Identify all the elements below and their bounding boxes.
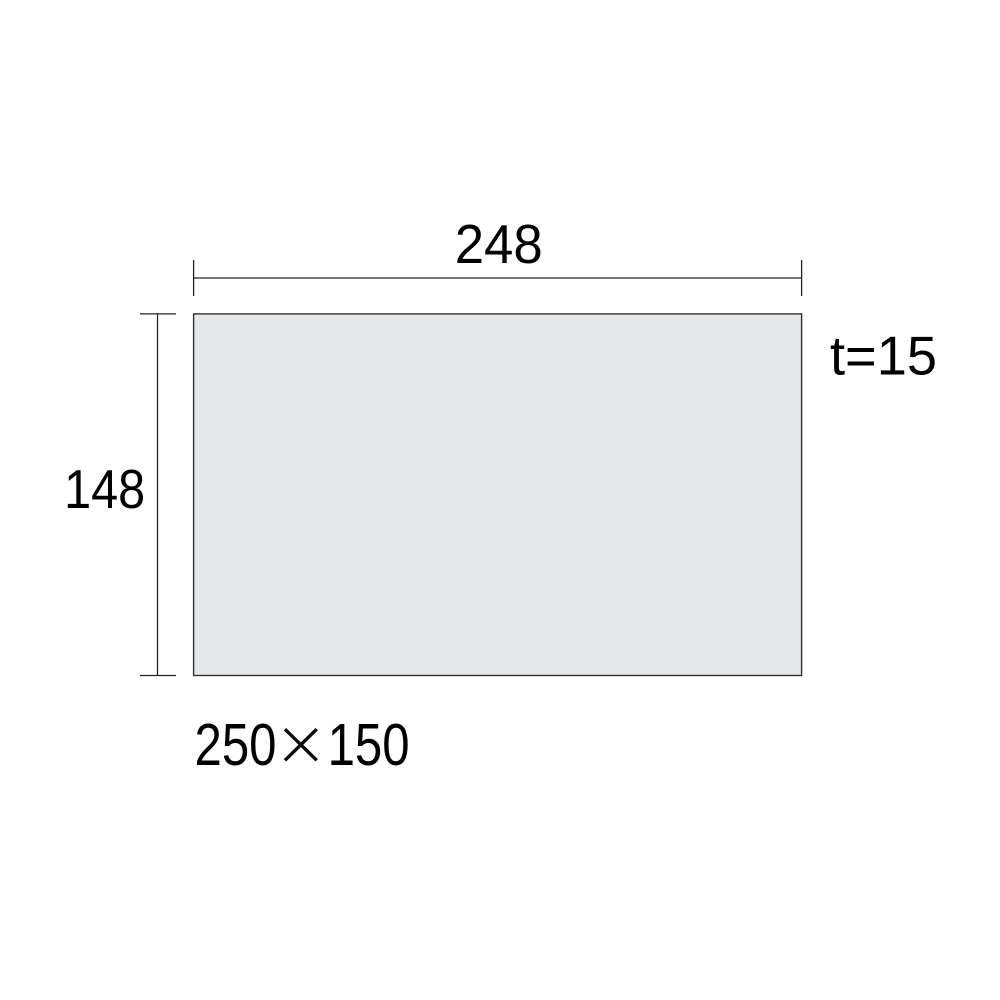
svg-text:250: 250 bbox=[195, 712, 277, 778]
svg-text:150: 150 bbox=[328, 712, 410, 778]
svg-text:148: 148 bbox=[64, 458, 145, 520]
svg-text:t=15: t=15 bbox=[830, 325, 937, 387]
svg-text:248: 248 bbox=[455, 213, 543, 275]
